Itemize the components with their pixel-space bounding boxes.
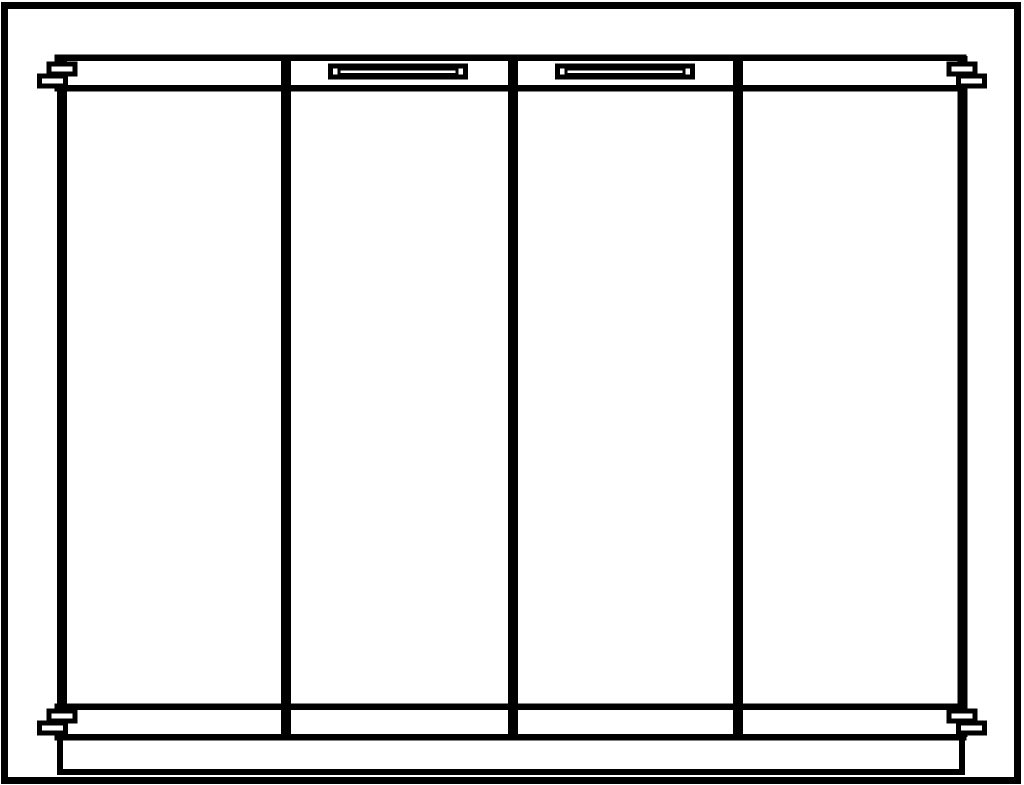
base-plate — [60, 737, 962, 772]
hinge-pin-bottom-right-plate-1 — [949, 711, 975, 721]
hinge-pin-top-left-plate-1 — [49, 64, 75, 74]
hinge-pin-bottom-left-plate-2 — [40, 723, 66, 733]
handle-left-slot — [339, 69, 457, 75]
hinge-pin-top-right-plate-1 — [949, 64, 975, 74]
door-diagram-svg — [0, 0, 1024, 785]
handle-right-slot — [566, 69, 684, 75]
hinge-pin-bottom-left-plate-1 — [49, 711, 75, 721]
hinge-pin-bottom-right-plate-2 — [959, 723, 985, 733]
door-diagram — [0, 0, 1024, 785]
hinge-pin-top-right-plate-2 — [959, 76, 985, 86]
hinge-pin-top-left-plate-2 — [40, 76, 66, 86]
